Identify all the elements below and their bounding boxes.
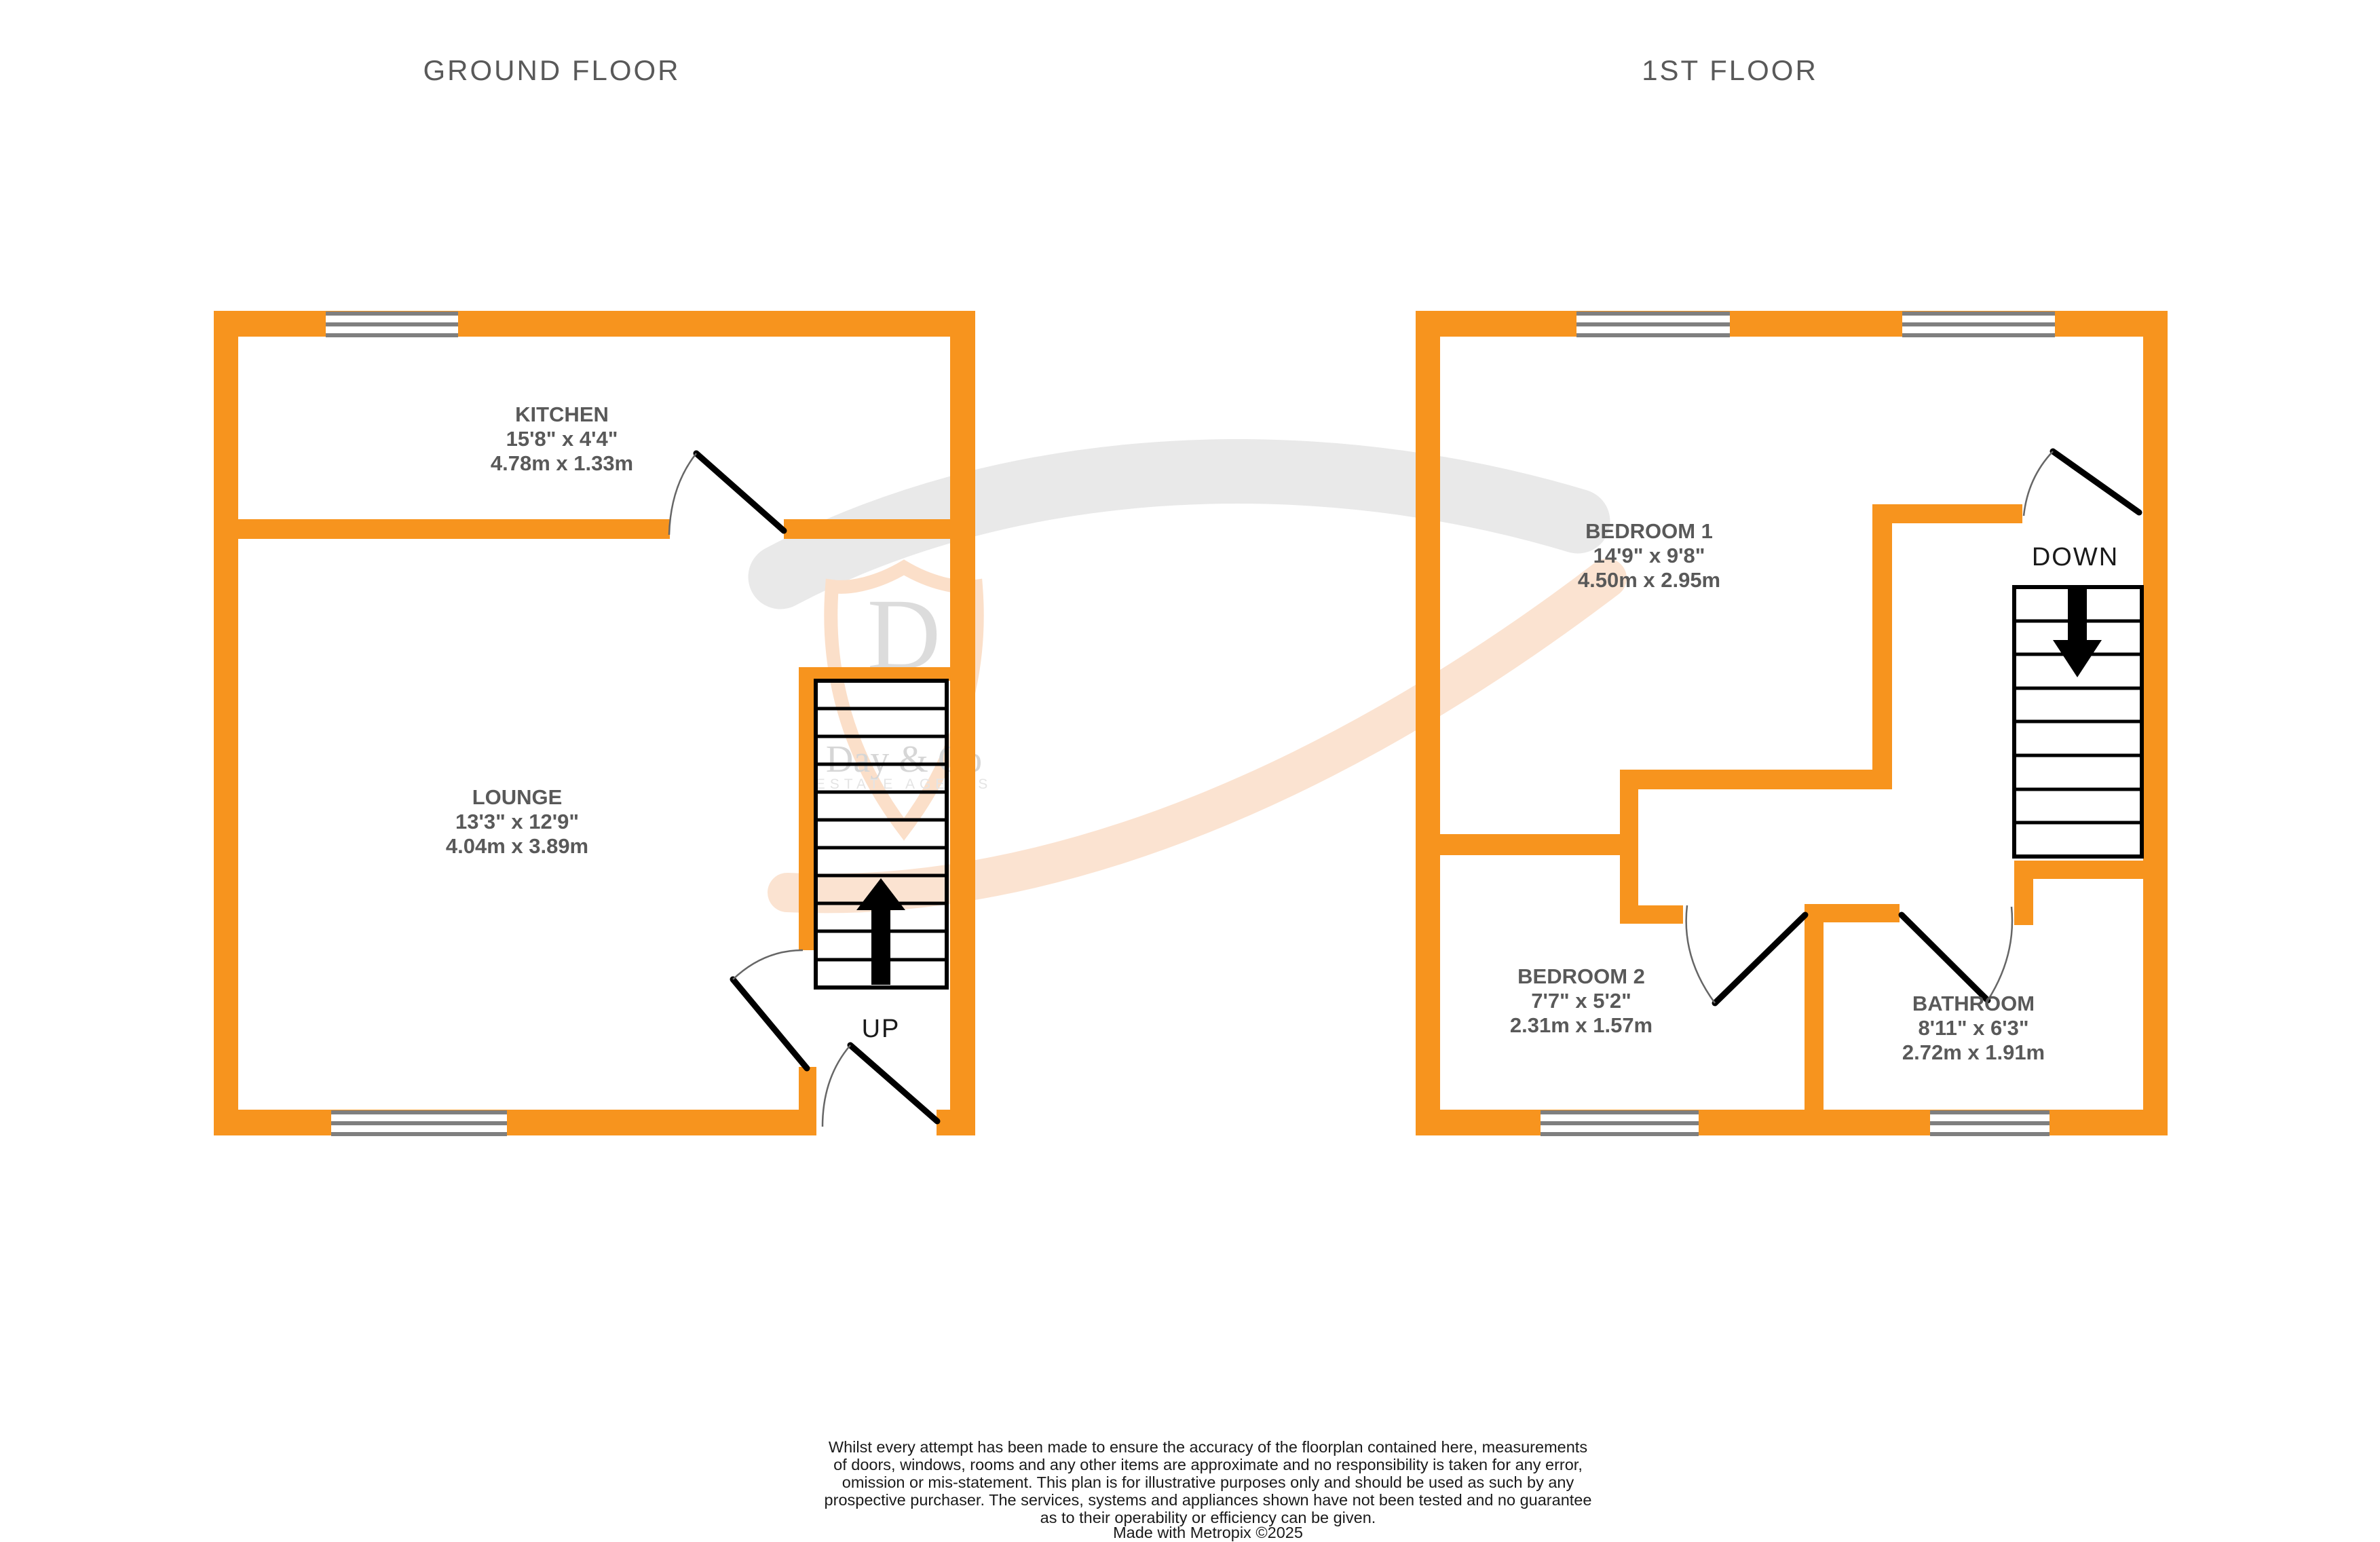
window <box>1930 1110 2050 1135</box>
svg-text:4.04m x 3.89m: 4.04m x 3.89m <box>446 834 588 858</box>
window <box>331 1110 507 1135</box>
svg-text:BEDROOM 2: BEDROOM 2 <box>1517 964 1645 988</box>
disclaimer-line: prospective purchaser. The services, sys… <box>825 1491 1592 1509</box>
svg-text:BATHROOM: BATHROOM <box>1912 992 2035 1015</box>
entrance-door <box>823 1045 937 1127</box>
stairwell-wall <box>1892 504 2022 523</box>
window <box>1576 312 1730 336</box>
wall <box>214 1110 816 1135</box>
stairwell-door <box>2024 451 2139 516</box>
room-label-lounge: LOUNGE 13'3" x 12'9" 4.04m x 3.89m <box>446 785 588 858</box>
first-floor-plan: DOWN BEDROOM 1 14'9" x 9'8" 4.50m x 2.95… <box>1416 311 2168 1135</box>
stairwell-wall <box>1872 504 1892 789</box>
svg-text:2.31m x 1.57m: 2.31m x 1.57m <box>1510 1013 1652 1037</box>
svg-text:13'3" x 12'9": 13'3" x 12'9" <box>455 810 579 833</box>
room-label-bedroom1: BEDROOM 1 14'9" x 9'8" 4.50m x 2.95m <box>1578 519 1720 592</box>
stairwell-wall <box>2014 861 2168 879</box>
bedroom-divider-wall <box>1440 834 1620 855</box>
stair-enclosure-wall <box>799 667 814 950</box>
wall <box>950 311 975 1135</box>
wall <box>1416 1110 2168 1135</box>
ground-floor-title: GROUND FLOOR <box>423 54 680 86</box>
room-label-bedroom2: BEDROOM 2 7'7" x 5'2" 2.31m x 1.57m <box>1510 964 1652 1037</box>
floorplan-canvas: GROUND FLOOR 1ST FLOOR D Day & Co ESTATE… <box>0 0 2380 1542</box>
kitchen-wall <box>784 519 950 539</box>
window <box>1902 312 2055 336</box>
bedroom2-door <box>1686 905 1805 1003</box>
landing-wall <box>1620 770 1638 924</box>
room-label-kitchen: KITCHEN 15'8" x 4'4" 4.78m x 1.33m <box>491 402 633 475</box>
svg-text:8'11" x 6'3": 8'11" x 6'3" <box>1918 1016 2028 1040</box>
disclaimer-line: Whilst every attempt has been made to en… <box>829 1438 1587 1456</box>
kitchen-door <box>669 453 784 535</box>
down-arrow-icon <box>2068 588 2087 640</box>
landing-wall <box>1638 905 1683 924</box>
wall <box>1416 311 1440 1135</box>
svg-text:14'9" x 9'8": 14'9" x 9'8" <box>1593 544 1705 567</box>
svg-text:15'8" x 4'4": 15'8" x 4'4" <box>506 427 618 451</box>
disclaimer-line: omission or mis-statement. This plan is … <box>842 1473 1574 1491</box>
down-label: DOWN <box>2032 543 2119 571</box>
down-arrow-icon <box>2053 640 2102 677</box>
svg-text:LOUNGE: LOUNGE <box>472 785 563 809</box>
disclaimer-credit: Made with Metropix ©2025 <box>1113 1524 1303 1541</box>
svg-text:7'7" x 5'2": 7'7" x 5'2" <box>1531 989 1631 1013</box>
kitchen-wall <box>238 519 670 539</box>
staircase-down <box>2014 587 2142 857</box>
lounge-door <box>733 950 807 1068</box>
window <box>326 312 458 336</box>
door-frame-stub <box>2014 861 2033 925</box>
svg-text:2.72m x 1.91m: 2.72m x 1.91m <box>1902 1040 2045 1064</box>
svg-text:KITCHEN: KITCHEN <box>515 402 609 426</box>
wall <box>937 1110 975 1135</box>
bathroom-divider-wall <box>1805 904 1824 1110</box>
svg-text:4.50m x 2.95m: 4.50m x 2.95m <box>1578 568 1720 592</box>
up-label: UP <box>862 1015 901 1043</box>
disclaimer-line: of doors, windows, rooms and any other i… <box>833 1456 1583 1473</box>
wall <box>214 311 238 1135</box>
first-floor-title: 1ST FLOOR <box>1642 54 1818 86</box>
wall <box>2143 311 2168 1135</box>
window <box>1541 1110 1699 1135</box>
svg-text:4.78m x 1.33m: 4.78m x 1.33m <box>491 451 633 475</box>
door-frame-stub <box>799 1067 816 1110</box>
svg-text:BEDROOM 1: BEDROOM 1 <box>1585 519 1713 543</box>
room-label-bathroom: BATHROOM 8'11" x 6'3" 2.72m x 1.91m <box>1902 992 2045 1064</box>
landing-wall <box>1638 770 1892 789</box>
disclaimer: Whilst every attempt has been made to en… <box>825 1438 1592 1541</box>
bathroom-wall <box>1805 904 1900 922</box>
bathroom-door <box>1902 907 2012 1000</box>
up-arrow-icon <box>871 910 890 985</box>
